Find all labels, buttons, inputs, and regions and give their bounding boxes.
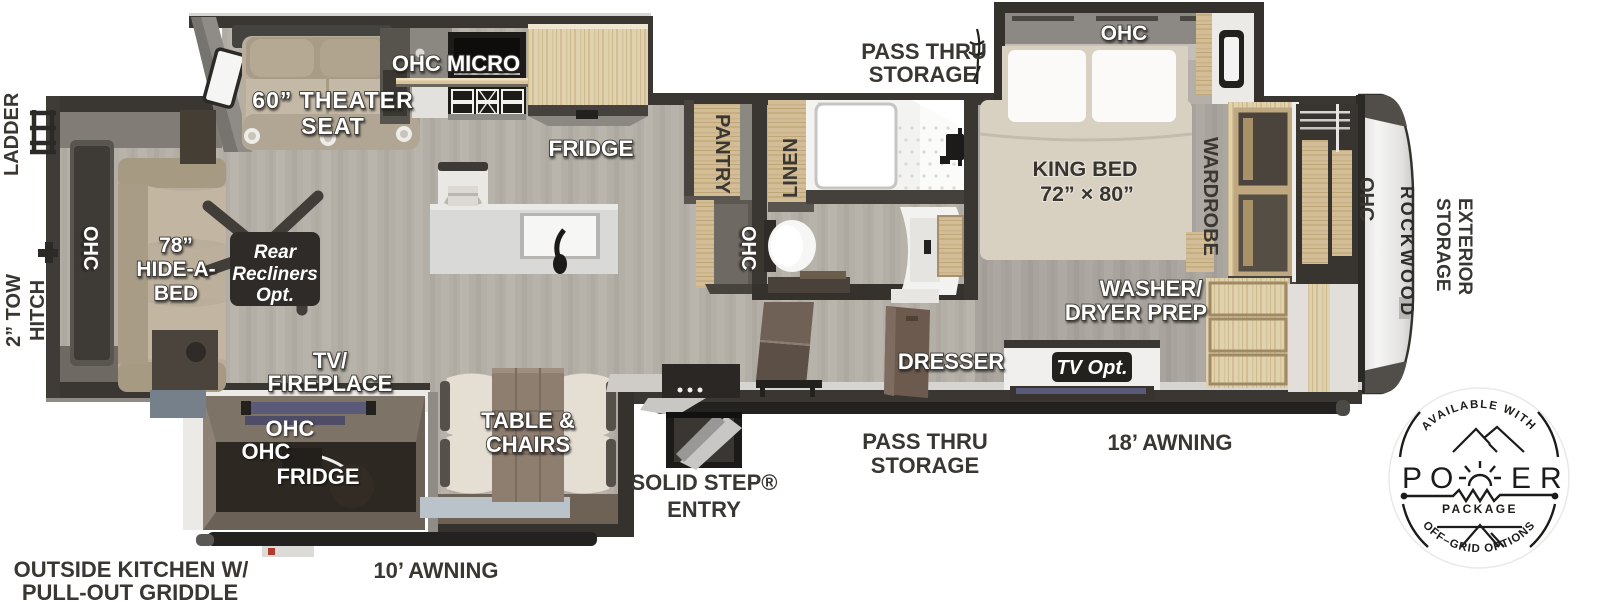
svg-text:SEAT: SEAT <box>301 113 365 139</box>
svg-text:2” TOW: 2” TOW <box>3 274 25 347</box>
svg-text:TV Opt.: TV Opt. <box>1056 357 1127 379</box>
svg-text:OHC: OHC <box>266 416 315 441</box>
svg-text:LADDER: LADDER <box>1 92 23 176</box>
svg-text:CHAIRS: CHAIRS <box>486 432 570 457</box>
svg-text:KING BED: KING BED <box>1032 157 1137 181</box>
svg-text:PASS THRU: PASS THRU <box>862 429 988 454</box>
svg-text:10’ AWNING: 10’ AWNING <box>373 558 498 583</box>
svg-text:Recliners: Recliners <box>232 264 318 285</box>
svg-text:LINEN: LINEN <box>780 138 802 198</box>
svg-text:O: O <box>1430 462 1453 495</box>
svg-text:P: P <box>1402 462 1422 495</box>
svg-text:STORAGE: STORAGE <box>1432 198 1453 292</box>
svg-text:FRIDGE: FRIDGE <box>276 464 359 489</box>
svg-text:FIREPLACE: FIREPLACE <box>268 371 393 396</box>
svg-text:DRYER PREP: DRYER PREP <box>1065 300 1207 325</box>
svg-text:ENTRY: ENTRY <box>667 497 741 522</box>
svg-text:EXTERIOR: EXTERIOR <box>1454 198 1475 295</box>
svg-text:ROCKWOOD: ROCKWOOD <box>1397 186 1417 318</box>
svg-text:PASS THRU: PASS THRU <box>861 39 987 64</box>
svg-text:R: R <box>1540 462 1562 495</box>
svg-text:FRIDGE: FRIDGE <box>548 136 633 161</box>
svg-text:OHC: OHC <box>79 226 101 270</box>
svg-text:STORAGE: STORAGE <box>869 62 977 87</box>
svg-text:TABLE &: TABLE & <box>481 408 575 433</box>
svg-text:HIDE-A-: HIDE-A- <box>136 258 215 281</box>
svg-text:Rear: Rear <box>254 242 298 263</box>
svg-text:OHC: OHC <box>1355 177 1377 221</box>
svg-text:HITCH: HITCH <box>27 280 49 341</box>
svg-text:Opt.: Opt. <box>256 285 294 306</box>
svg-text:E: E <box>1511 462 1531 495</box>
svg-text:STORAGE: STORAGE <box>871 453 979 478</box>
svg-text:OHC: OHC <box>737 226 759 270</box>
svg-text:78”: 78” <box>159 234 193 257</box>
svg-text:TV/: TV/ <box>313 348 347 373</box>
svg-text:72” × 80”: 72” × 80” <box>1040 182 1134 206</box>
svg-text:60” THEATER: 60” THEATER <box>252 87 413 113</box>
svg-text:PULL-OUT GRIDDLE: PULL-OUT GRIDDLE <box>22 580 238 602</box>
svg-text:OUTSIDE KITCHEN W/: OUTSIDE KITCHEN W/ <box>14 557 249 582</box>
svg-text:SOLID STEP®: SOLID STEP® <box>630 470 777 495</box>
svg-text:WASHER/: WASHER/ <box>1100 276 1203 301</box>
svg-text:OHC MICRO: OHC MICRO <box>392 51 520 76</box>
svg-text:OHC: OHC <box>242 439 291 464</box>
svg-text:PANTRY: PANTRY <box>711 114 733 195</box>
svg-text:OHC: OHC <box>1101 22 1148 45</box>
svg-text:BED: BED <box>154 282 198 305</box>
svg-text:DRESSER: DRESSER <box>898 349 1004 374</box>
svg-text:18’ AWNING: 18’ AWNING <box>1107 430 1232 455</box>
svg-text:WARDROBE: WARDROBE <box>1199 137 1221 256</box>
svg-text:PACKAGE: PACKAGE <box>1442 502 1518 516</box>
